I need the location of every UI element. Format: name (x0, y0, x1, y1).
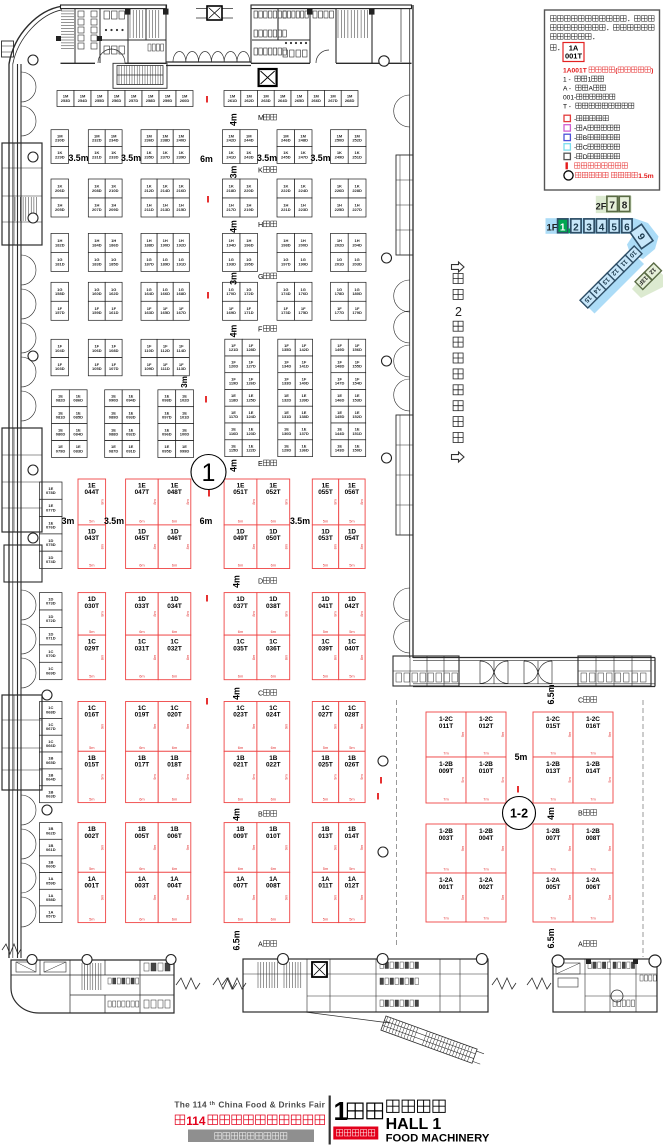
svg-text:9m: 9m (333, 774, 338, 779)
svg-text:143D: 143D (335, 448, 345, 453)
svg-text:066D: 066D (46, 743, 56, 748)
svg-text:027T: 027T (318, 712, 333, 719)
svg-text:6m: 6m (271, 519, 276, 524)
svg-text:9m: 9m (185, 774, 190, 779)
svg-text:9m: 9m (152, 895, 157, 900)
svg-text:063D: 063D (46, 794, 56, 799)
svg-text:156D: 156D (352, 347, 362, 352)
svg-text:004T: 004T (479, 835, 494, 842)
svg-text:037T: 037T (233, 603, 248, 610)
svg-text:172D: 172D (244, 291, 254, 296)
svg-text:074D: 074D (46, 559, 56, 564)
svg-text:157D: 157D (55, 310, 65, 315)
svg-text:195D: 195D (244, 261, 254, 266)
svg-text:031T: 031T (135, 645, 150, 652)
svg-text:9m: 9m (284, 774, 289, 779)
svg-text:013T: 013T (546, 768, 561, 775)
svg-text:1F: 1F (546, 223, 557, 234)
svg-text:4m: 4m (546, 807, 556, 820)
svg-text:257D: 257D (129, 98, 139, 103)
svg-text:227D: 227D (352, 207, 362, 212)
svg-text:5m: 5m (500, 777, 505, 782)
svg-text:9m: 9m (607, 732, 612, 737)
svg-text:9m: 9m (567, 846, 572, 851)
svg-text:064D: 064D (46, 777, 56, 782)
svg-text:6m: 6m (271, 866, 276, 871)
svg-text:B: B (578, 809, 583, 818)
svg-text:9m: 9m (100, 774, 105, 779)
svg-text:191D: 191D (176, 261, 186, 266)
svg-text:033T: 033T (135, 603, 150, 610)
svg-text:8m: 8m (251, 655, 256, 660)
svg-text:042T: 042T (345, 603, 360, 610)
svg-text:7m: 7m (550, 797, 555, 802)
svg-text:001T: 001T (439, 884, 454, 891)
svg-text:052T: 052T (266, 489, 281, 496)
svg-text:8m: 8m (152, 655, 157, 660)
svg-text:047T: 047T (135, 489, 150, 496)
svg-text:256D: 256D (112, 98, 122, 103)
svg-text:009T: 009T (439, 768, 454, 775)
svg-text:006T: 006T (586, 884, 601, 891)
svg-text:6m: 6m (172, 916, 177, 921)
svg-text:133D: 133D (282, 381, 292, 386)
svg-text:3m: 3m (180, 376, 189, 388)
svg-text:103D: 103D (55, 366, 65, 371)
svg-text:8m: 8m (100, 655, 105, 660)
svg-text:8m: 8m (284, 611, 289, 616)
svg-text:9m: 9m (359, 895, 364, 900)
svg-text:152D: 152D (352, 414, 362, 419)
svg-text:015T: 015T (546, 723, 561, 730)
svg-text:5m: 5m (500, 895, 505, 900)
svg-text:5m: 5m (349, 916, 354, 921)
svg-text:160D: 160D (92, 291, 102, 296)
svg-text:9m: 9m (359, 774, 364, 779)
svg-text:6m: 6m (139, 796, 144, 801)
svg-text:187D: 187D (144, 261, 154, 266)
svg-text:3.5m: 3.5m (257, 153, 277, 163)
svg-text:5m: 5m (89, 916, 94, 921)
svg-text:146D: 146D (335, 397, 345, 402)
svg-text:4: 4 (599, 222, 605, 233)
svg-text:4m: 4m (232, 808, 242, 821)
svg-text:258D: 258D (146, 98, 156, 103)
svg-text:9m: 9m (500, 846, 505, 851)
svg-text:267D: 267D (328, 98, 338, 103)
svg-text:9m: 9m (359, 845, 364, 850)
svg-text:-: - (574, 135, 576, 142)
svg-text:): ) (651, 68, 653, 75)
svg-text:268D: 268D (345, 98, 355, 103)
svg-text:9m: 9m (100, 845, 105, 850)
svg-text:006T: 006T (167, 833, 182, 840)
svg-text:174D: 174D (281, 291, 291, 296)
svg-text:5m: 5m (607, 895, 612, 900)
svg-text:089D: 089D (109, 415, 119, 420)
svg-text:014T: 014T (345, 833, 360, 840)
svg-text:9m: 9m (284, 724, 289, 729)
svg-text:9m: 9m (333, 845, 338, 850)
svg-text:125D: 125D (246, 397, 256, 402)
svg-text:022T: 022T (266, 762, 281, 769)
svg-text:H: H (258, 220, 263, 229)
svg-text:095D: 095D (162, 448, 172, 453)
svg-text:HALL 1: HALL 1 (386, 1116, 442, 1133)
svg-text:021T: 021T (233, 762, 248, 769)
svg-text:7m: 7m (483, 916, 488, 921)
svg-text:196D: 196D (244, 242, 254, 247)
svg-text:D: D (583, 154, 588, 161)
svg-text:8: 8 (622, 201, 628, 212)
svg-text:A: A (583, 126, 588, 133)
svg-text:001-: 001- (563, 95, 576, 102)
svg-text:218D: 218D (226, 188, 236, 193)
svg-text:2: 2 (455, 305, 462, 319)
svg-text:012T: 012T (479, 723, 494, 730)
svg-text:K: K (258, 166, 263, 175)
svg-text:251D: 251D (352, 154, 362, 159)
svg-text:8m: 8m (284, 544, 289, 549)
svg-text:9m: 9m (333, 724, 338, 729)
svg-text:6m: 6m (238, 796, 243, 801)
svg-text:192D: 192D (176, 242, 186, 247)
svg-text:3.5m: 3.5m (68, 153, 88, 163)
svg-text:114: 114 (186, 1114, 206, 1128)
svg-text:6m: 6m (139, 866, 144, 871)
svg-text:9m: 9m (100, 724, 105, 729)
svg-text:070D: 070D (46, 653, 56, 658)
svg-text:179D: 179D (352, 310, 362, 315)
svg-text:086D: 086D (73, 398, 83, 403)
svg-text:9m: 9m (359, 724, 364, 729)
svg-text:131D: 131D (282, 414, 292, 419)
svg-text:014T: 014T (586, 768, 601, 775)
svg-text:7m: 7m (483, 797, 488, 802)
svg-text:011T: 011T (439, 723, 453, 730)
svg-text:226D: 226D (335, 188, 345, 193)
svg-text:8m: 8m (152, 499, 157, 504)
svg-text:209D: 209D (109, 207, 119, 212)
svg-text:029T: 029T (85, 645, 100, 652)
svg-text:6: 6 (624, 222, 630, 233)
svg-text:5m: 5m (323, 745, 328, 750)
svg-text:121D: 121D (229, 347, 239, 352)
svg-text:076D: 076D (46, 525, 56, 530)
svg-text:212D: 212D (144, 188, 154, 193)
svg-text:245D: 245D (281, 154, 291, 159)
svg-text:115D: 115D (229, 448, 238, 453)
svg-text:237D: 237D (160, 154, 170, 159)
svg-text:054T: 054T (345, 535, 360, 542)
svg-text:096D: 096D (162, 432, 172, 437)
svg-text:228D: 228D (352, 188, 362, 193)
svg-text:059D: 059D (46, 880, 56, 885)
svg-text:4m: 4m (229, 324, 239, 337)
svg-text:135D: 135D (282, 347, 292, 352)
svg-text:8m: 8m (333, 611, 338, 616)
svg-text:122D: 122D (246, 448, 256, 453)
svg-text:104D: 104D (55, 348, 65, 353)
svg-text:208D: 208D (92, 188, 102, 193)
svg-text:087D: 087D (109, 448, 119, 453)
svg-text:250D: 250D (335, 138, 345, 143)
svg-text:019T: 019T (135, 712, 150, 719)
svg-text:6m: 6m (172, 866, 177, 871)
svg-text:5m: 5m (460, 895, 465, 900)
svg-text:132D: 132D (282, 397, 292, 402)
svg-text:6m: 6m (200, 154, 213, 164)
svg-text:018T: 018T (167, 762, 182, 769)
svg-text:238D: 238D (160, 138, 170, 143)
svg-text:101D: 101D (180, 415, 190, 420)
svg-text:5m: 5m (460, 777, 465, 782)
svg-text:E: E (258, 459, 263, 468)
svg-text:8m: 8m (100, 499, 105, 504)
svg-text:158D: 158D (55, 291, 65, 296)
svg-text:T -: T - (563, 104, 571, 111)
svg-text:6.5m: 6.5m (546, 928, 556, 948)
svg-text:3.5m: 3.5m (104, 516, 124, 526)
svg-text:204D: 204D (352, 242, 362, 247)
svg-text:241D: 241D (226, 154, 236, 159)
svg-text:260D: 260D (180, 98, 190, 103)
svg-text:008T: 008T (266, 883, 281, 890)
svg-text:168D: 168D (176, 291, 186, 296)
svg-text:248D: 248D (298, 138, 308, 143)
svg-text:8m: 8m (185, 544, 190, 549)
svg-text:039T: 039T (318, 645, 333, 652)
svg-text:-: - (574, 116, 576, 123)
svg-text:112D: 112D (161, 348, 170, 353)
svg-text:9m: 9m (460, 846, 465, 851)
svg-text:6m: 6m (271, 916, 276, 921)
svg-text:7m: 7m (590, 797, 595, 802)
svg-text:214D: 214D (160, 188, 170, 193)
svg-text:166D: 166D (160, 291, 170, 296)
svg-text:001T: 001T (565, 52, 583, 61)
svg-text:084D: 084D (73, 432, 83, 437)
svg-text:088D: 088D (109, 432, 119, 437)
svg-text:188D: 188D (144, 242, 154, 247)
svg-text:6m: 6m (139, 519, 144, 524)
svg-text:6.5m: 6.5m (232, 930, 242, 950)
svg-text:041T: 041T (318, 603, 333, 610)
svg-text:1.5m: 1.5m (638, 173, 654, 180)
svg-text:8m: 8m (359, 611, 364, 616)
svg-text:6m: 6m (139, 745, 144, 750)
svg-text:109D: 109D (144, 366, 154, 371)
svg-text:194D: 194D (226, 242, 236, 247)
svg-text:175D: 175D (298, 310, 308, 315)
svg-text:7m: 7m (443, 751, 448, 756)
svg-text:5m: 5m (89, 629, 94, 634)
svg-text:164D: 164D (144, 291, 154, 296)
svg-text:7m: 7m (483, 751, 488, 756)
svg-text:020T: 020T (167, 712, 182, 719)
svg-text:134D: 134D (282, 364, 292, 369)
svg-text:025T: 025T (318, 762, 333, 769)
svg-text:038T: 038T (266, 603, 281, 610)
svg-text:6m: 6m (172, 519, 177, 524)
svg-text:123D: 123D (246, 431, 256, 436)
svg-text:051T: 051T (233, 489, 248, 496)
svg-text:9m: 9m (152, 845, 157, 850)
svg-text:043T: 043T (85, 535, 100, 542)
svg-text:216D: 216D (176, 188, 186, 193)
svg-text:016T: 016T (85, 712, 100, 719)
svg-text:3.5m: 3.5m (121, 153, 141, 163)
svg-text:215D: 215D (176, 207, 186, 212)
svg-text:5m: 5m (323, 519, 328, 524)
svg-text:092D: 092D (126, 432, 136, 437)
svg-text:220D: 220D (244, 188, 254, 193)
svg-text:1A001T: 1A001T (563, 68, 588, 75)
svg-text:136D: 136D (299, 448, 309, 453)
svg-text:255D: 255D (95, 98, 105, 103)
svg-text:231D: 231D (92, 154, 102, 159)
svg-text:1: 1 (334, 1096, 348, 1126)
svg-text:065D: 065D (46, 760, 56, 765)
svg-text:8m: 8m (100, 611, 105, 616)
svg-text:180D: 180D (352, 291, 362, 296)
svg-text:6m: 6m (200, 516, 213, 526)
svg-text:5m: 5m (323, 796, 328, 801)
svg-text:5m: 5m (323, 674, 328, 679)
svg-text:100D: 100D (180, 432, 190, 437)
svg-text:005T: 005T (135, 833, 150, 840)
svg-text:1: 1 (588, 77, 592, 84)
svg-text:9m: 9m (251, 845, 256, 850)
svg-text:F: F (258, 325, 263, 334)
svg-text:079D: 079D (56, 448, 66, 453)
svg-text:8m: 8m (333, 544, 338, 549)
svg-text:5m: 5m (349, 519, 354, 524)
svg-text:6m: 6m (139, 562, 144, 567)
svg-text:113D: 113D (177, 366, 186, 371)
svg-text:058D: 058D (46, 897, 56, 902)
svg-text:213D: 213D (160, 207, 170, 212)
svg-text:6m: 6m (238, 916, 243, 921)
svg-text:8m: 8m (100, 544, 105, 549)
svg-text:6m: 6m (271, 745, 276, 750)
svg-text:028T: 028T (345, 712, 360, 719)
svg-text:234D: 234D (109, 138, 119, 143)
svg-text:003T: 003T (135, 883, 150, 890)
svg-text:050T: 050T (266, 535, 281, 542)
svg-text:030T: 030T (85, 603, 100, 610)
svg-text:004T: 004T (167, 883, 182, 890)
svg-text:A: A (578, 940, 583, 949)
svg-text:1: 1 (202, 459, 216, 487)
svg-text:141D: 141D (299, 364, 309, 369)
svg-text:9m: 9m (152, 774, 157, 779)
svg-text:222D: 222D (281, 188, 291, 193)
svg-text:162D: 162D (109, 291, 119, 296)
svg-text:264D: 264D (278, 98, 288, 103)
svg-text:114D: 114D (177, 348, 186, 353)
svg-text:7m: 7m (550, 916, 555, 921)
svg-text:7m: 7m (550, 867, 555, 872)
svg-text:5m: 5m (349, 796, 354, 801)
svg-text:6m: 6m (238, 866, 243, 871)
svg-text:202D: 202D (335, 242, 345, 247)
svg-text:159D: 159D (92, 310, 102, 315)
svg-text:6m: 6m (238, 519, 243, 524)
svg-text:B: B (583, 135, 588, 142)
svg-text:1: 1 (560, 222, 566, 233)
svg-text:6m: 6m (271, 562, 276, 567)
svg-text:8m: 8m (251, 544, 256, 549)
svg-text:206D: 206D (55, 188, 65, 193)
svg-text:3m: 3m (229, 272, 239, 285)
svg-text:8m: 8m (284, 499, 289, 504)
svg-text:161D: 161D (109, 310, 119, 315)
svg-text:9m: 9m (185, 845, 190, 850)
svg-text:M: M (258, 113, 264, 122)
svg-text:035T: 035T (233, 645, 248, 652)
svg-text:FOOD MACHINERY: FOOD MACHINERY (386, 1133, 490, 1145)
svg-text:6m: 6m (172, 674, 177, 679)
svg-text:7m: 7m (590, 867, 595, 872)
svg-text:072D: 072D (46, 618, 56, 623)
svg-text:170D: 170D (226, 291, 236, 296)
svg-text:221D: 221D (281, 207, 291, 212)
svg-text:048T: 048T (167, 489, 182, 496)
svg-text:002T: 002T (85, 833, 100, 840)
svg-text:8m: 8m (185, 499, 190, 504)
svg-text:B: B (258, 810, 263, 819)
svg-text:082D: 082D (56, 398, 66, 403)
svg-text:246D: 246D (281, 138, 291, 143)
svg-text:6m: 6m (271, 674, 276, 679)
svg-text:9m: 9m (607, 846, 612, 851)
svg-text:4m: 4m (229, 113, 239, 126)
svg-text:153D: 153D (352, 397, 362, 402)
svg-text:197D: 197D (281, 261, 291, 266)
svg-text:144D: 144D (335, 431, 345, 436)
svg-text:4m: 4m (229, 459, 239, 472)
svg-text:046T: 046T (167, 535, 182, 542)
svg-text:3m: 3m (62, 516, 75, 526)
svg-text:049T: 049T (233, 535, 248, 542)
svg-text:116D: 116D (229, 431, 238, 436)
svg-text:1-2: 1-2 (510, 807, 528, 821)
svg-text:8m: 8m (185, 655, 190, 660)
svg-text:The 114 th China Food & Drinks: The 114 th China Food & Drinks Fair (174, 1100, 325, 1110)
svg-text:081D: 081D (56, 415, 66, 420)
svg-text:145D: 145D (335, 414, 345, 419)
svg-text:7m: 7m (443, 916, 448, 921)
svg-text:080D: 080D (56, 432, 66, 437)
svg-text:5: 5 (611, 222, 617, 233)
svg-text:155D: 155D (352, 364, 362, 369)
svg-text:106D: 106D (92, 348, 102, 353)
svg-text:261D: 261D (228, 98, 238, 103)
svg-text:147D: 147D (335, 381, 345, 386)
svg-text:4m: 4m (232, 575, 242, 588)
svg-text:142D: 142D (299, 347, 309, 352)
svg-text:189D: 189D (160, 261, 170, 266)
svg-text:3: 3 (586, 222, 592, 233)
svg-text:4m: 4m (229, 220, 239, 233)
svg-text:5m: 5m (349, 629, 354, 634)
svg-text:4m: 4m (232, 687, 242, 700)
svg-text:165D: 165D (160, 310, 170, 315)
svg-text:6m: 6m (238, 745, 243, 750)
svg-text:A: A (258, 940, 263, 949)
svg-text:108D: 108D (109, 348, 119, 353)
